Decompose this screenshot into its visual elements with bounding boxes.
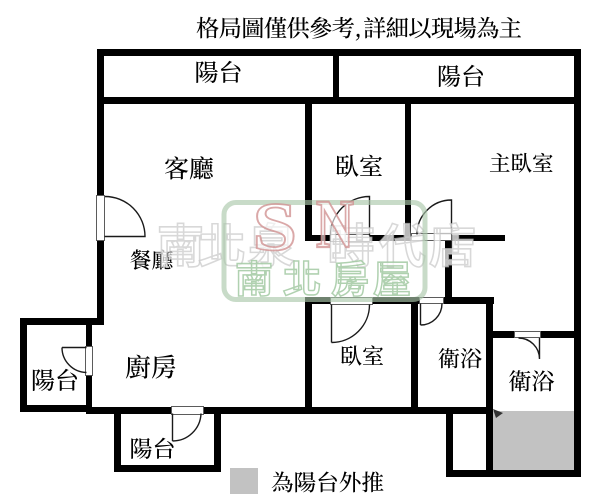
svg-text:N: N (316, 186, 354, 263)
svg-text:S: S (253, 189, 298, 266)
